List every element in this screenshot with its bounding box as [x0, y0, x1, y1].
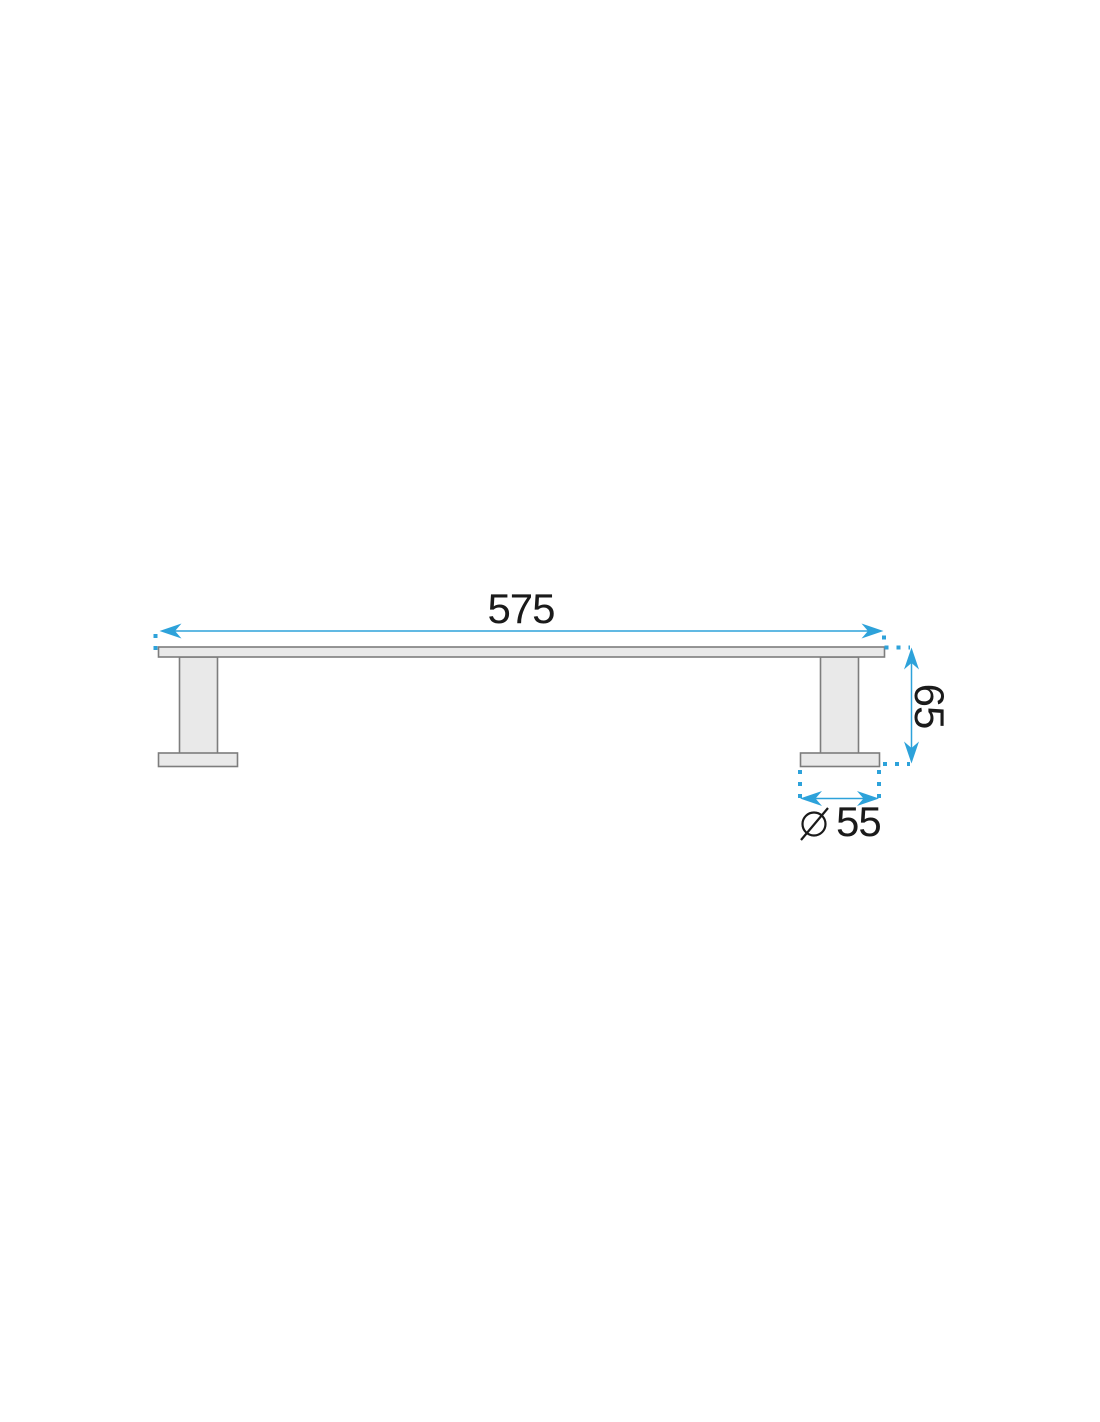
right-wall-flange	[801, 753, 880, 767]
diameter-value: 55	[836, 802, 881, 842]
height-dimension-label: 65	[909, 684, 949, 729]
diameter-icon	[799, 800, 833, 844]
length-dimension-label: 575	[451, 589, 591, 629]
left-post	[180, 657, 218, 754]
right-post	[821, 657, 859, 754]
diameter-dimension-label: 55	[799, 800, 881, 844]
rail-bar	[159, 647, 885, 657]
drawing-canvas: 575 65 55	[0, 0, 1100, 1422]
rail-part	[159, 647, 885, 767]
left-wall-flange	[159, 753, 238, 767]
